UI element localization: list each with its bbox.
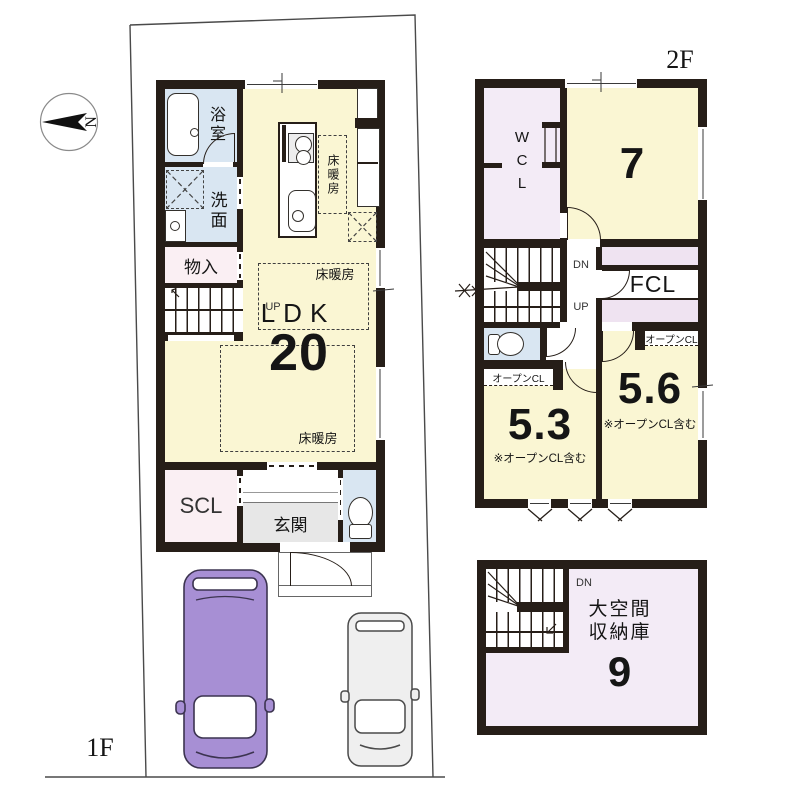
floorplan-canvas: N 浴室: [0, 0, 800, 800]
window: [568, 499, 592, 508]
bedroom-53-size: 5.3: [484, 399, 596, 451]
compass-north-label: N: [83, 116, 100, 128]
wall-segment: [355, 118, 379, 128]
sink-faucet: [170, 221, 180, 231]
entrance-floor: 玄関: [243, 502, 338, 543]
cupboard: [357, 128, 380, 207]
sink-faucet: [292, 210, 304, 222]
closet-label: 物入: [184, 253, 218, 278]
bedroom-56-size: 5.6: [602, 363, 698, 415]
washing-machine-space: [166, 170, 204, 209]
open-closet-zone: オープンCL: [645, 331, 698, 346]
ldk-label: LDK: [248, 299, 348, 327]
refrigerator-space: [348, 212, 377, 242]
toilet-tank: [349, 524, 372, 539]
open-closet-label: オープンCL: [645, 331, 697, 346]
compass-icon: N: [41, 94, 101, 151]
west-block: 浴室 洗面 物入: [165, 89, 243, 341]
open-closet-note: ※オープンCL含む: [602, 418, 698, 434]
walkin-closet-label: WCL: [514, 129, 531, 198]
floor-heating-label: 床暖房: [324, 142, 342, 208]
bathtub-drain: [190, 128, 199, 137]
door-opening: [602, 322, 632, 331]
washroom-label: 洗面: [204, 181, 230, 241]
closet-room: 物入: [165, 247, 237, 283]
stairs-down-label: DN: [571, 577, 597, 590]
entrance-hall: [243, 470, 338, 502]
window: [376, 248, 385, 288]
staircase-storage-upper: [486, 569, 563, 602]
wall-segment: [486, 647, 569, 653]
closet-stub-wall: [635, 330, 645, 350]
open-closet-note: ※オープンCL含む: [484, 452, 596, 468]
ldk-size: 20: [244, 324, 354, 382]
fcl-closet-strip: [602, 247, 698, 265]
open-closet-label: オープンCL: [492, 370, 544, 385]
fcl-label: FCL: [623, 271, 683, 297]
door-opening: [560, 213, 567, 238]
window: [698, 127, 707, 200]
stairs-up-label: UP: [568, 301, 594, 314]
window: [608, 499, 632, 508]
entrance-step: [243, 492, 338, 493]
sliding-door-opening: [267, 462, 317, 470]
fcl-closet-strip: [602, 300, 698, 322]
stair-landing: [517, 602, 563, 612]
window: [565, 79, 637, 88]
cupboard: [357, 88, 378, 119]
stair-landing: [517, 282, 560, 291]
cupboard-divider: [357, 162, 378, 164]
floor1-title: 1F: [70, 733, 130, 763]
entrance-door-opening: [280, 542, 350, 552]
purple-car: [176, 570, 274, 768]
wall-segment: [560, 248, 567, 322]
storage-size: 9: [560, 648, 680, 696]
closet-stub-wall: [484, 163, 502, 168]
shoe-closet-label: SCL: [180, 493, 223, 519]
floor2-plan: WCL 7 DN UP FCL: [475, 79, 707, 508]
floor1-plan: 浴室 洗面 物入 UP: [156, 80, 385, 552]
closet-stub-wall: [553, 368, 563, 390]
floor-heating-zone: 床暖房: [318, 135, 347, 214]
door-opening: [237, 252, 243, 280]
wall-segment: [484, 360, 563, 369]
open-closet-zone: オープンCL: [484, 369, 553, 386]
door-opening: [237, 177, 243, 209]
vent-marks: [528, 509, 632, 521]
entrance-label: 玄関: [274, 511, 308, 536]
floor-heating-label: 床暖房: [307, 267, 363, 282]
window: [376, 367, 385, 440]
bathtub: [167, 93, 199, 156]
storage-plan: DN 大空間 収納庫 9: [477, 560, 707, 735]
stove-burner: [296, 150, 311, 165]
shoe-closet-room: SCL: [165, 470, 237, 542]
window: [528, 499, 551, 508]
porch-step: [278, 585, 372, 597]
staircase-2f-upper: [484, 248, 560, 282]
storage-name-line1: 大空間: [560, 599, 680, 619]
floor-heating-label: 床暖房: [290, 431, 346, 446]
toilet-bowl: [497, 332, 524, 356]
floor2-title: 2F: [655, 45, 705, 75]
window: [698, 388, 707, 440]
kitchen-panel: [282, 125, 286, 162]
window: [245, 80, 318, 89]
stairs-down-label: DN: [568, 259, 594, 272]
gray-car: [341, 613, 419, 766]
bedroom-7-size: 7: [620, 139, 645, 189]
storage-name-line2: 収納庫: [560, 622, 680, 642]
understair-counter: [168, 335, 234, 341]
